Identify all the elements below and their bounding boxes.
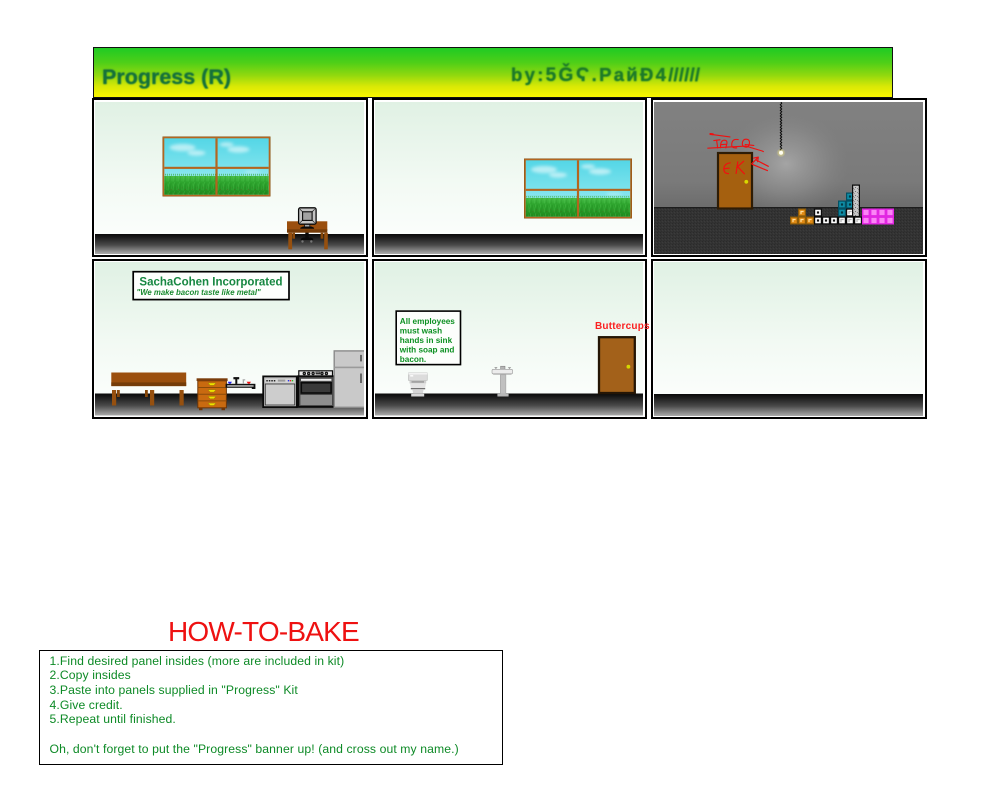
svg-text:All employees: All employees [400, 317, 456, 326]
svg-text:must wash: must wash [400, 326, 442, 335]
svg-text:"We make bacon taste like meta: "We make bacon taste like metal" [137, 288, 262, 297]
svg-text:hands in sink: hands in sink [400, 336, 453, 345]
svg-text:bacon.: bacon. [400, 355, 426, 364]
svg-text:with soap and: with soap and [399, 346, 455, 355]
svg-text:SachaCohen Incorporated: SachaCohen Incorporated [139, 276, 282, 288]
